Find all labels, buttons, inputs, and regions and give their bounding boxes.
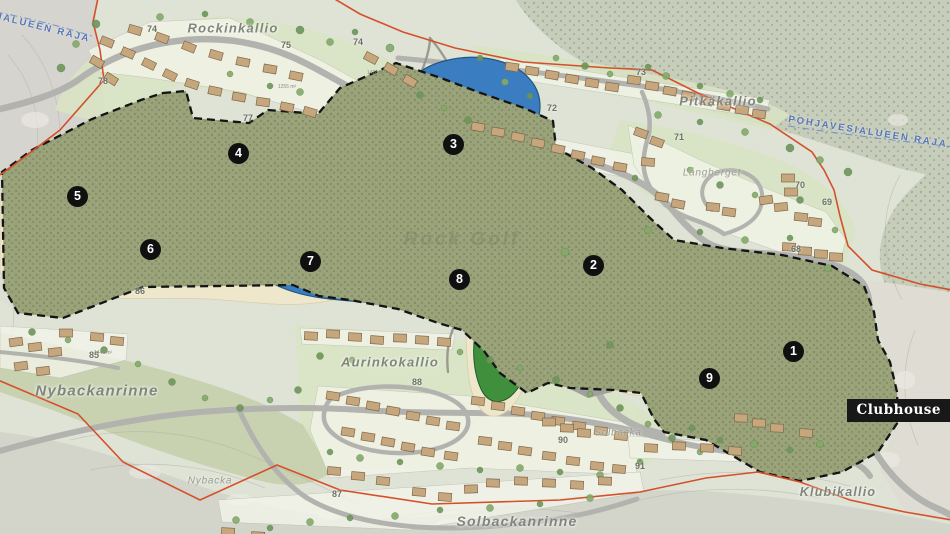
tree: [607, 71, 613, 77]
house: [446, 421, 460, 431]
house: [28, 342, 42, 352]
house: [437, 338, 451, 347]
house: [471, 396, 485, 406]
tree: [386, 44, 394, 52]
house: [256, 97, 270, 107]
tree: [697, 83, 703, 89]
house: [598, 477, 611, 485]
house: [785, 188, 798, 196]
house: [752, 109, 766, 119]
tree: [617, 405, 624, 412]
tree: [73, 41, 80, 48]
house: [829, 253, 842, 262]
tree: [441, 105, 447, 111]
house: [794, 212, 808, 221]
house: [590, 461, 604, 470]
tree: [202, 395, 208, 401]
tree: [727, 91, 734, 98]
house: [799, 429, 813, 438]
house: [486, 479, 499, 487]
tree: [717, 437, 723, 443]
house: [511, 406, 525, 416]
house: [444, 451, 458, 461]
house: [412, 487, 426, 496]
tree: [92, 20, 100, 28]
tree: [392, 513, 399, 520]
house: [585, 78, 599, 88]
house: [734, 414, 747, 422]
house: [438, 493, 452, 502]
house: [346, 396, 360, 406]
house: [326, 391, 340, 401]
tree: [202, 11, 208, 17]
tree: [832, 227, 838, 233]
house: [774, 202, 788, 211]
tree: [844, 168, 852, 176]
house: [393, 334, 406, 342]
tree: [465, 117, 472, 124]
house: [14, 361, 28, 371]
house: [614, 431, 628, 440]
tree: [169, 379, 176, 386]
tree: [437, 507, 443, 513]
hole-marker-1: 1: [783, 341, 804, 362]
tree: [297, 89, 304, 96]
tree: [135, 361, 141, 367]
tree: [663, 73, 670, 80]
house: [304, 332, 317, 341]
tree: [786, 144, 794, 152]
tree: [697, 229, 703, 235]
house: [612, 464, 626, 473]
tree: [327, 39, 334, 46]
house: [9, 337, 23, 347]
hole-marker-4: 4: [228, 143, 249, 164]
tree: [697, 119, 703, 125]
tree: [227, 71, 233, 77]
tree: [537, 501, 543, 507]
hole-marker-2: 2: [583, 255, 604, 276]
clubhouse-label: Clubhouse: [847, 399, 950, 422]
house: [543, 418, 556, 426]
tree: [751, 441, 758, 448]
tree: [397, 459, 403, 465]
tree: [457, 349, 463, 355]
tree: [307, 519, 314, 526]
hole-marker-8: 8: [449, 269, 470, 290]
house: [525, 66, 539, 76]
tree: [752, 192, 758, 198]
map-artwork: [0, 0, 950, 534]
tree: [267, 83, 273, 89]
house: [735, 105, 749, 115]
tree: [295, 387, 302, 394]
house: [570, 481, 583, 490]
tree: [553, 377, 560, 384]
house: [370, 336, 384, 345]
tree: [637, 459, 643, 465]
tree: [477, 55, 483, 61]
house: [341, 427, 355, 437]
tree: [352, 29, 358, 35]
tree: [561, 248, 569, 256]
house: [782, 174, 795, 182]
house: [478, 436, 492, 446]
house: [90, 332, 104, 341]
tree: [317, 353, 324, 360]
tree: [347, 515, 353, 521]
house: [706, 202, 720, 211]
house: [672, 442, 685, 450]
tree: [587, 391, 593, 397]
house: [351, 471, 365, 480]
tree: [502, 79, 509, 86]
tree: [57, 64, 65, 72]
tree: [477, 467, 483, 473]
tree: [655, 112, 662, 119]
tree: [689, 425, 695, 431]
house: [376, 476, 390, 485]
tree: [267, 397, 273, 403]
tree: [296, 26, 304, 34]
house: [770, 424, 783, 433]
house: [426, 416, 440, 426]
house: [406, 411, 420, 421]
tree: [607, 342, 614, 349]
hole-marker-9: 9: [699, 368, 720, 389]
tree: [553, 55, 559, 61]
house: [577, 429, 590, 438]
house: [566, 456, 580, 466]
tree: [645, 421, 651, 427]
house: [36, 366, 50, 376]
tree: [157, 14, 164, 21]
tree: [65, 337, 71, 343]
tree: [645, 227, 652, 234]
tree: [487, 357, 494, 364]
tree: [349, 357, 355, 363]
tree: [632, 175, 638, 181]
house: [644, 444, 657, 453]
house: [415, 336, 428, 345]
tree: [825, 265, 832, 272]
house: [518, 446, 532, 456]
tree: [645, 64, 651, 70]
house: [542, 451, 556, 461]
tree: [817, 441, 824, 448]
house: [421, 447, 435, 457]
house: [327, 466, 341, 475]
tree: [787, 235, 793, 241]
house: [464, 485, 477, 493]
house: [48, 347, 62, 356]
house: [221, 528, 234, 534]
tree: [817, 157, 824, 164]
house: [752, 419, 765, 427]
tree: [527, 93, 533, 99]
house: [542, 479, 555, 487]
tree: [237, 405, 244, 412]
house: [60, 329, 73, 337]
tree: [29, 329, 36, 336]
tree: [582, 63, 589, 70]
house: [814, 250, 827, 259]
house: [326, 330, 339, 338]
hole-marker-7: 7: [300, 251, 321, 272]
house: [808, 217, 822, 227]
tree: [267, 525, 273, 531]
hole-marker-5: 5: [67, 186, 88, 207]
tree: [357, 455, 364, 462]
house: [728, 447, 742, 456]
tree: [742, 237, 749, 244]
house: [361, 432, 375, 442]
tree: [487, 505, 494, 512]
tree: [247, 19, 254, 26]
tree: [517, 465, 524, 472]
house: [348, 333, 361, 342]
house: [700, 444, 713, 453]
hole-marker-6: 6: [140, 239, 161, 260]
tree: [437, 463, 444, 470]
house: [605, 82, 619, 92]
tree: [327, 449, 333, 455]
house: [641, 157, 655, 166]
tree: [101, 347, 108, 354]
tree: [587, 495, 594, 502]
house: [645, 81, 659, 91]
house: [110, 336, 124, 345]
tree: [797, 197, 804, 204]
tree: [669, 435, 676, 442]
tree: [687, 167, 693, 173]
house: [594, 426, 608, 435]
hole-marker-3: 3: [443, 134, 464, 155]
house: [798, 247, 811, 256]
house: [627, 75, 641, 85]
house: [759, 195, 773, 205]
house: [782, 243, 795, 252]
house: [505, 62, 519, 72]
tree: [757, 97, 763, 103]
tree: [233, 517, 240, 524]
tree: [787, 447, 793, 453]
house: [491, 401, 505, 411]
house: [498, 441, 512, 451]
tree: [717, 182, 724, 189]
tree: [742, 129, 749, 136]
tree: [557, 469, 563, 475]
house: [560, 424, 573, 432]
tree: [417, 92, 424, 99]
tree: [517, 365, 523, 371]
golf-course-site-plan: Rockinkallio Pitkäkallio Nybackanrinne A…: [0, 0, 950, 534]
house: [514, 477, 527, 485]
house: [722, 207, 736, 217]
